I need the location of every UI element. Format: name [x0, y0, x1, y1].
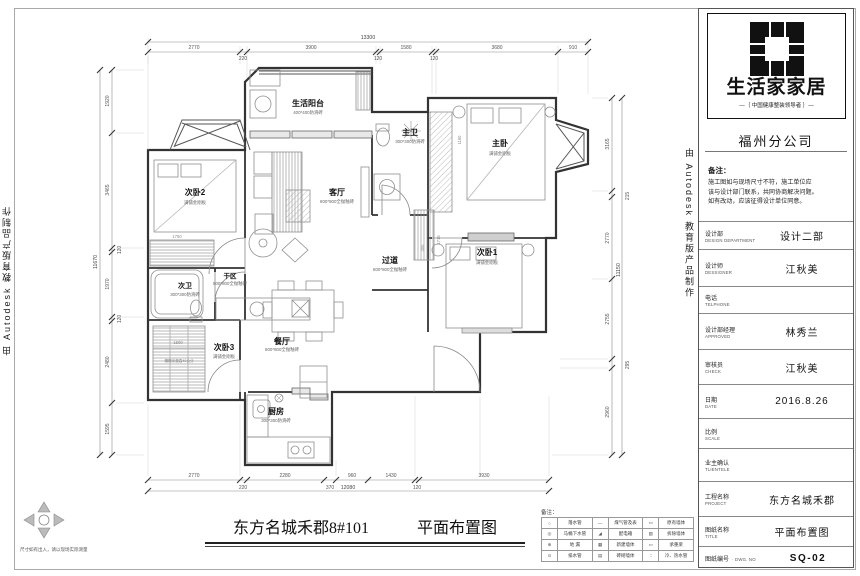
svg-text:2480: 2480 [105, 356, 111, 367]
dim-bottom-overall: 12080 [341, 485, 356, 491]
row-designer: 设计师DESSIGNER 江秋美 [699, 249, 853, 286]
notes-caption: 备注： [708, 165, 846, 176]
svg-text:220: 220 [239, 56, 248, 62]
furniture [150, 70, 555, 463]
svg-text:2770: 2770 [188, 473, 199, 479]
svg-text:120: 120 [430, 56, 439, 62]
existing-wall-icon: ▭ [643, 518, 659, 529]
room-label-balcony: 生活阳台 [292, 98, 324, 108]
title-underline-thick [205, 542, 525, 544]
svg-text:3680: 3680 [491, 45, 502, 51]
room-material-corridor: 800*800全抛釉砖 [373, 266, 408, 273]
brand-name: 生活家家居 [708, 78, 845, 98]
svg-text:120: 120 [117, 246, 123, 255]
svg-text:215: 215 [625, 192, 631, 201]
room-material-balcony: 400*400防滑砖 [293, 109, 323, 116]
room-label-dry-area: 干区 [224, 272, 238, 280]
legend-caption: 备注： [541, 508, 694, 516]
demolished-wall-icon: ▨ [643, 529, 659, 540]
room-label-kitchen: 厨房 [268, 406, 284, 416]
sheet-title: 东方名城禾郡8#101 平面布置图 [205, 514, 525, 547]
room-material-bedroom2: 满铺金刚板 [184, 199, 207, 206]
svg-text:1430: 1430 [385, 473, 396, 479]
logo-mark-icon [750, 22, 804, 76]
notes-block: 备注： 施工图如与现场尺寸不符，施工单位应 该与设计部门联系，共同协商解决问题。… [708, 165, 846, 207]
legend-row: ⊕ 地 漏 ▦ 新建墙体 ▭ 承重梁 [542, 540, 694, 551]
row-clientele: 业主确认TLIENTELE [699, 448, 853, 481]
svg-text:3900: 3900 [305, 45, 316, 51]
drain-pipe-icon: ⊙ [542, 551, 558, 562]
sheet-title-project: 东方名城禾郡8#101 [233, 514, 369, 538]
row-check: 审核员CHECK 江秋美 [699, 349, 853, 384]
dim-top-overall: 13300 [361, 35, 376, 41]
svg-text:120: 120 [413, 485, 422, 491]
legend-row: ⊙ 排水管 ▤ 砖砌墙体 ∶∶ 冷、热水管 [542, 551, 694, 562]
brick-wall-icon: ▤ [592, 551, 608, 562]
room-material-bedroom1: 满铺金刚板 [476, 259, 499, 266]
dim-right-overall: 11150 [616, 263, 622, 277]
beam-icon: ▭ [643, 540, 659, 551]
floor-plan: 次卧2 满铺金刚板 生活阳台 400*400防滑砖 客厅 800*800全抛釉砖… [0, 0, 695, 576]
room-label-second-bath: 次卫 [178, 281, 192, 290]
svg-text:1580: 1580 [400, 45, 411, 51]
room-label-master-bedroom: 主卧 [492, 138, 508, 148]
room-label-corridor: 过道 [382, 255, 398, 265]
svg-text:1750: 1750 [172, 234, 182, 239]
room-label-bedroom1: 次卧1 [477, 247, 498, 257]
doors [208, 185, 480, 392]
row-approved: 设计部经理APPROVED 林秀兰 [699, 313, 853, 349]
row-project: 工程名称PROJECT 东方名城禾郡 [699, 481, 853, 516]
title-underline-thin [205, 546, 525, 547]
tatami-annotation: 榻榻米垫高40公分 [164, 358, 194, 363]
room-material-bedroom3: 满铺金刚板 [213, 353, 236, 360]
legend-row: ◎ 马桶下水管 ◢ 配电箱 ▨ 拆除墙体 [542, 529, 694, 540]
distribution-box-icon: ◢ [592, 529, 608, 540]
dim-left-overall: 11670 [93, 255, 99, 269]
bay-windows [170, 71, 584, 169]
row-scale: 比例SCALE [699, 418, 853, 448]
room-material-master-bath: 300*300防滑砖 [395, 138, 425, 145]
company-logo: 生活家家居 —｛ 中国健康整装领导者 ｝— [707, 13, 846, 119]
room-label-master-bath: 主卫 [402, 127, 418, 137]
svg-text:1970: 1970 [105, 278, 111, 289]
room-label-living: 客厅 [328, 187, 345, 197]
svg-text:120: 120 [117, 315, 123, 324]
room-label-bedroom2: 次卧2 [185, 187, 206, 197]
title-block-rows: 设计部DESIGN DEPARTMENT 设计二部 设计师DESSIGNER 江… [699, 221, 853, 569]
svg-text:370: 370 [326, 485, 335, 491]
legend: 备注： ○ 落水管 — 煤气管及表 ▭ 原有墙体 ◎ 马桶下水管 ◢ 配电箱 ▨… [541, 508, 694, 562]
room-labels: 次卧2 满铺金刚板 生活阳台 400*400防滑砖 客厅 800*800全抛釉砖… [164, 98, 511, 424]
svg-text:3930: 3930 [478, 473, 489, 479]
svg-text:1500: 1500 [173, 340, 183, 345]
svg-text:2960: 2960 [605, 406, 611, 417]
svg-text:1920: 1920 [105, 95, 111, 106]
svg-text:1715: 1715 [436, 235, 441, 245]
legend-row: ○ 落水管 — 煤气管及表 ▭ 原有墙体 [542, 518, 694, 529]
branch-name: 福州分公司 [699, 131, 853, 150]
room-material-master-bedroom: 满铺金刚板 [489, 150, 512, 157]
floor-drain-icon: ⊕ [542, 540, 558, 551]
room-material-living: 800*800全抛釉砖 [320, 198, 355, 205]
new-wall-icon: ▦ [592, 540, 608, 551]
hot-cold-pipe-icon: ∶∶ [643, 551, 659, 562]
sheet-title-drawing: 平面布置图 [417, 514, 497, 538]
divider [705, 151, 847, 152]
row-drawing-title: 图纸名称TITLE 平面布置图 [699, 516, 853, 546]
corner-note: 尺寸如有出入，请以现场实际测量 [20, 547, 140, 553]
title-block: 生活家家居 —｛ 中国健康整装领导者 ｝— 福州分公司 备注： 施工图如与现场尺… [698, 8, 854, 568]
row-date: 日期DATE 2016.8.26 [699, 384, 853, 418]
svg-text:120: 120 [374, 56, 383, 62]
row-design-department: 设计部DESIGN DEPARTMENT 设计二部 [699, 221, 853, 249]
row-telephone: 电话TELPHONE [699, 286, 853, 313]
room-label-dining: 餐厅 [273, 336, 290, 346]
gas-pipe-icon: — [592, 518, 608, 529]
corner-block: 尺寸如有出入，请以现场实际测量 [20, 500, 140, 553]
svg-text:2770: 2770 [605, 232, 611, 243]
room-material-dry-area: 800*800全抛釉砖 [213, 280, 248, 287]
row-drawing-number: 图纸编号· DWG. NO SQ-02 [699, 546, 853, 569]
svg-text:3165: 3165 [605, 138, 611, 149]
svg-text:1595: 1595 [105, 423, 111, 434]
svg-text:910: 910 [569, 45, 578, 51]
compass-icon [20, 500, 68, 540]
room-label-bedroom3: 次卧3 [214, 342, 235, 352]
svg-text:3465: 3465 [105, 184, 111, 195]
svg-text:960: 960 [348, 473, 357, 479]
svg-text:1160: 1160 [457, 135, 462, 145]
svg-text:295: 295 [625, 361, 631, 370]
brand-tagline: —｛ 中国健康整装领导者 ｝— [708, 101, 845, 109]
room-material-kitchen: 300*300防滑砖 [261, 417, 291, 424]
svg-text:2280: 2280 [279, 473, 290, 479]
svg-text:220: 220 [239, 485, 248, 491]
room-material-second-bath: 300*300防滑砖 [170, 291, 200, 298]
svg-text:305: 305 [420, 244, 425, 252]
toilet-drain-icon: ◎ [542, 529, 558, 540]
svg-text:2770: 2770 [188, 45, 199, 51]
downpipe-icon: ○ [542, 518, 558, 529]
svg-text:2755: 2755 [605, 313, 611, 324]
room-material-dining: 800*800全抛釉砖 [265, 346, 300, 353]
